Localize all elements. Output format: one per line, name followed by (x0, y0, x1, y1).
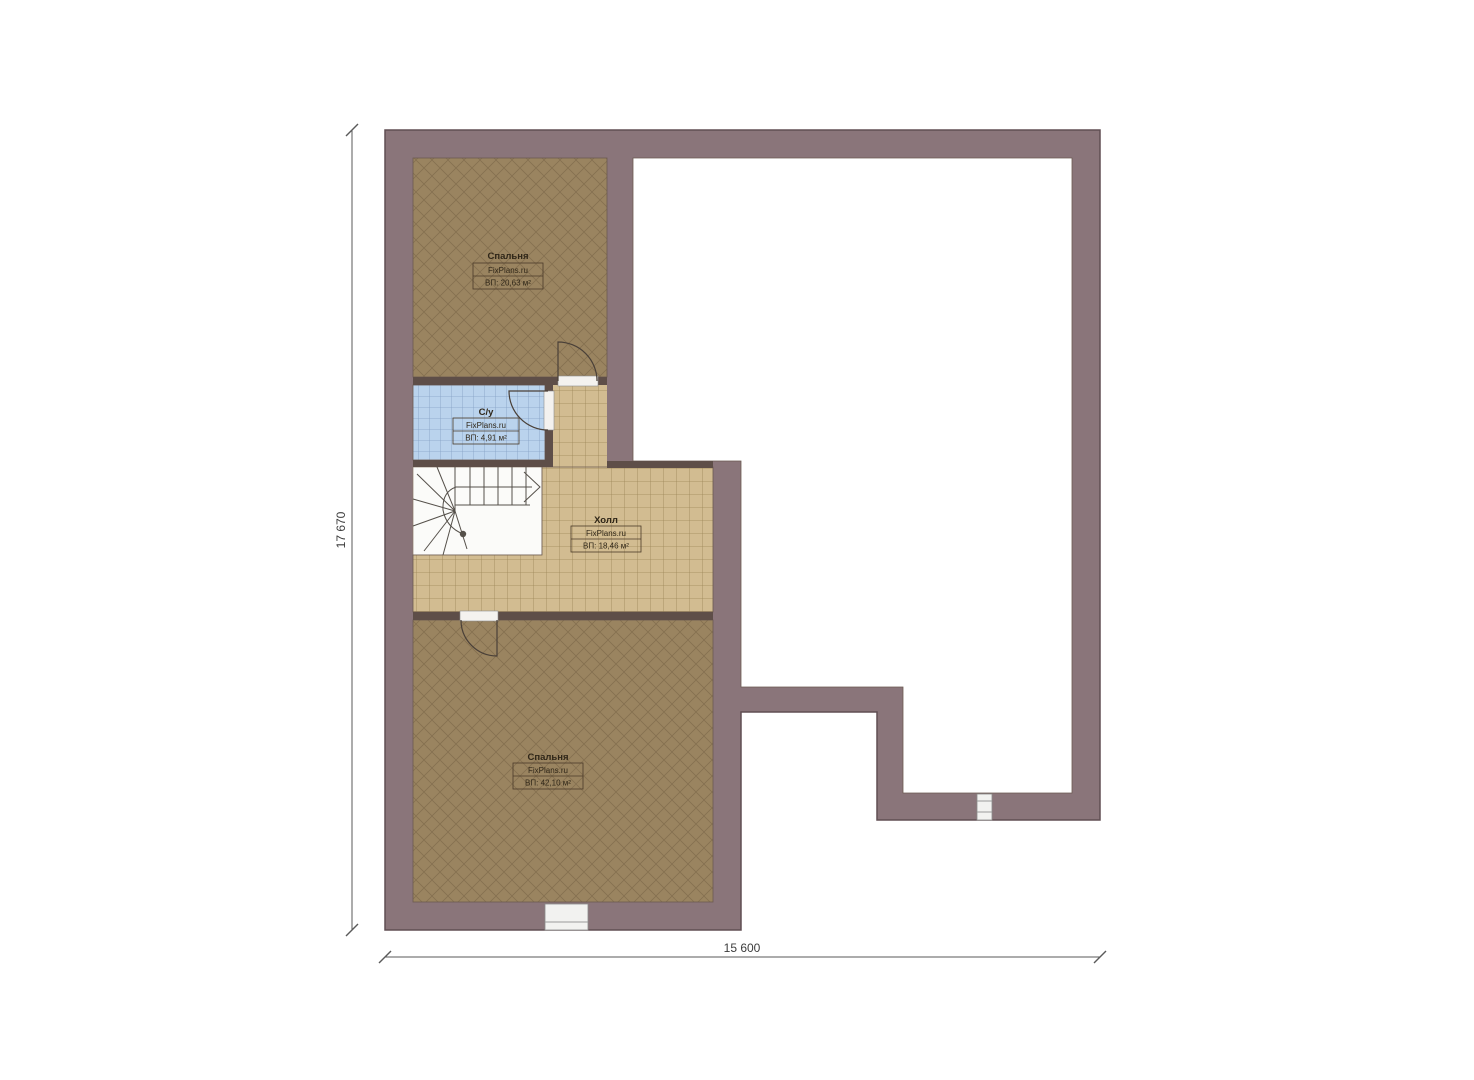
room-name: Спальня (527, 752, 568, 763)
partition-hall-top (607, 461, 713, 468)
door-opening-bedroom-top (558, 376, 598, 386)
floor-plan-canvas: Спальня FixPlans.ru ВП: 20,63 м² С/у Fix… (0, 0, 1474, 1080)
room-area: ВП: 18,46 м² (583, 542, 629, 551)
dimension-value-horizontal: 15 600 (724, 941, 761, 955)
watermark-text: FixPlans.ru (528, 766, 568, 775)
partition-hall-bottom (413, 612, 713, 620)
partition-bathroom-bottom (413, 460, 545, 467)
watermark-text: FixPlans.ru (488, 266, 528, 275)
room-name: Спальня (487, 251, 528, 262)
stairwell-floor (413, 467, 542, 555)
window-bottom (545, 904, 588, 930)
door-opening-bathroom (544, 391, 554, 430)
watermark-text: FixPlans.ru (586, 529, 626, 538)
room-area: ВП: 20,63 м² (485, 279, 531, 288)
stair-arrow-start-dot (460, 531, 466, 537)
room-area: ВП: 4,91 м² (465, 434, 507, 443)
room-name: С/у (479, 407, 495, 418)
room-area: ВП: 42,10 м² (525, 779, 571, 788)
dimension-value-vertical: 17 670 (334, 511, 348, 548)
corridor-floor (553, 385, 607, 467)
door-opening-bedroom-bottom (460, 611, 498, 621)
dimension-vertical: 17 670 (334, 124, 358, 936)
watermark-text: FixPlans.ru (466, 421, 506, 430)
dimension-horizontal: 15 600 (379, 941, 1106, 963)
room-name: Холл (594, 515, 618, 526)
window-bottom-right (977, 794, 992, 820)
